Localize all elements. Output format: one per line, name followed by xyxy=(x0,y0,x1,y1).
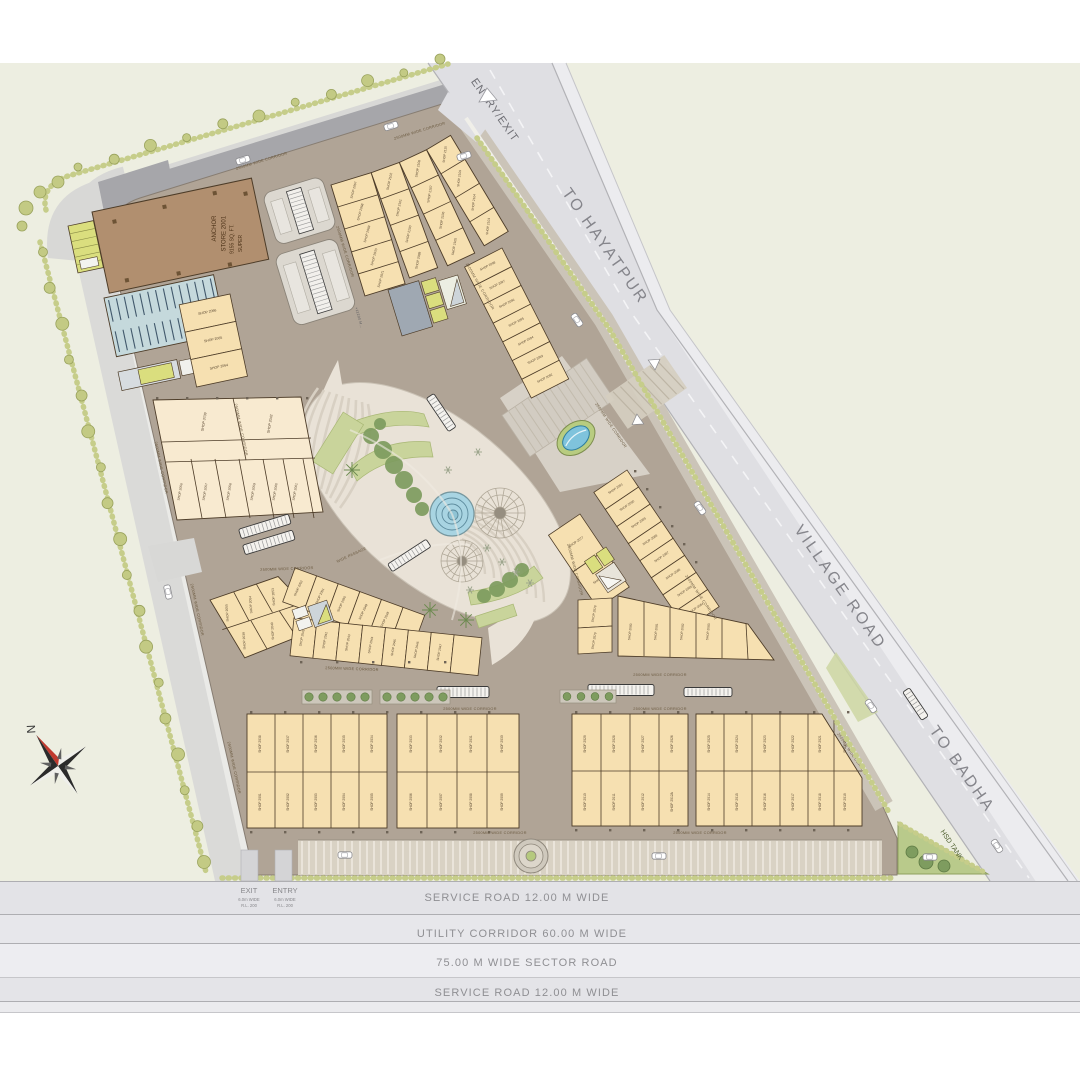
svg-text:SUPER: SUPER xyxy=(238,235,244,253)
svg-text:SHOP 2030: SHOP 2030 xyxy=(500,735,504,753)
svg-text:75.00 M WIDE SECTOR ROAD: 75.00 M WIDE SECTOR ROAD xyxy=(436,957,617,969)
svg-text:EXIT: EXIT xyxy=(241,886,258,895)
svg-text:ENTRY: ENTRY xyxy=(272,886,297,895)
svg-text:SHOP 2036: SHOP 2036 xyxy=(314,735,318,753)
svg-text:SHOP 2026: SHOP 2026 xyxy=(670,735,674,753)
svg-text:SHOP 2018: SHOP 2018 xyxy=(818,793,822,811)
svg-text:SHOP 2003: SHOP 2003 xyxy=(314,793,318,811)
svg-text:SHOP 2007: SHOP 2007 xyxy=(439,793,443,811)
svg-text:SHOP 2021: SHOP 2021 xyxy=(818,735,822,753)
svg-text:SHOP 2029: SHOP 2029 xyxy=(583,735,587,753)
svg-text:2500MM WIDE CORRIDOR: 2500MM WIDE CORRIDOR xyxy=(473,831,526,835)
svg-text:SHOP 2012A: SHOP 2012A xyxy=(670,791,674,812)
svg-text:SHOP 2009: SHOP 2009 xyxy=(500,793,504,811)
svg-text:SERVICE ROAD 12.00 M WIDE: SERVICE ROAD 12.00 M WIDE xyxy=(424,892,609,904)
svg-text:9155 SQ. FT.: 9155 SQ. FT. xyxy=(230,224,236,253)
svg-text:SHOP 2022: SHOP 2022 xyxy=(791,735,795,753)
svg-text:ANCHOR: ANCHOR xyxy=(212,215,218,242)
svg-text:SHOP 2037: SHOP 2037 xyxy=(286,735,290,753)
svg-text:SHOP 2011: SHOP 2011 xyxy=(612,793,616,810)
svg-text:2500MM WIDE CORRIDOR: 2500MM WIDE CORRIDOR xyxy=(633,673,686,677)
svg-text:SHOP 2015: SHOP 2015 xyxy=(735,793,739,811)
svg-text:2500MM WIDE CORRIDOR: 2500MM WIDE CORRIDOR xyxy=(633,707,686,711)
svg-text:SHOP 2016: SHOP 2016 xyxy=(763,793,767,811)
svg-text:N: N xyxy=(24,724,38,733)
svg-text:SHOP 2008: SHOP 2008 xyxy=(469,793,473,811)
svg-text:2500MM WIDE CORRIDOR: 2500MM WIDE CORRIDOR xyxy=(673,831,726,835)
svg-text:SHOP 2017: SHOP 2017 xyxy=(791,793,795,811)
svg-text:2500MM WIDE CORRIDOR: 2500MM WIDE CORRIDOR xyxy=(443,707,496,711)
svg-text:SERVICE ROAD 12.00 M WIDE: SERVICE ROAD 12.00 M WIDE xyxy=(434,987,619,999)
svg-text:SHOP 2014: SHOP 2014 xyxy=(707,793,711,811)
svg-text:SHOP 2024: SHOP 2024 xyxy=(735,735,739,753)
svg-text:R.L. 200: R.L. 200 xyxy=(241,903,258,908)
svg-text:UTILITY CORRIDOR 60.00 M WIDE: UTILITY CORRIDOR 60.00 M WIDE xyxy=(417,928,627,940)
svg-text:SHOP 2019: SHOP 2019 xyxy=(843,793,847,811)
svg-text:SHOP 2002: SHOP 2002 xyxy=(286,793,290,811)
svg-text:6.0m WIDE: 6.0m WIDE xyxy=(238,897,260,902)
svg-text:SHOP 2005: SHOP 2005 xyxy=(370,793,374,811)
svg-text:SHOP 2004: SHOP 2004 xyxy=(342,793,346,811)
svg-text:SHOP 2035: SHOP 2035 xyxy=(342,735,346,753)
svg-text:SHOP 2033: SHOP 2033 xyxy=(409,735,413,753)
svg-text:SHOP 2032: SHOP 2032 xyxy=(439,735,443,753)
svg-text:SHOP 2034: SHOP 2034 xyxy=(370,735,374,753)
svg-text:SHOP 2027: SHOP 2027 xyxy=(641,735,645,753)
svg-text:SHOP 2038: SHOP 2038 xyxy=(258,735,262,753)
svg-text:SHOP 2023: SHOP 2023 xyxy=(763,735,767,753)
svg-text:6.0m WIDE: 6.0m WIDE xyxy=(274,897,296,902)
svg-text:SHOP 2010: SHOP 2010 xyxy=(583,793,587,811)
svg-text:STORE 2001: STORE 2001 xyxy=(221,215,227,251)
svg-text:SHOP 2012: SHOP 2012 xyxy=(641,793,645,811)
svg-text:SHOP 2025: SHOP 2025 xyxy=(707,735,711,753)
svg-text:SHOP 2006: SHOP 2006 xyxy=(409,793,413,811)
svg-text:SHOP 2001: SHOP 2001 xyxy=(258,793,262,811)
svg-text:SHOP 2031: SHOP 2031 xyxy=(469,735,473,753)
svg-text:R.L. 200: R.L. 200 xyxy=(277,903,294,908)
svg-text:SHOP 2028: SHOP 2028 xyxy=(612,735,616,753)
